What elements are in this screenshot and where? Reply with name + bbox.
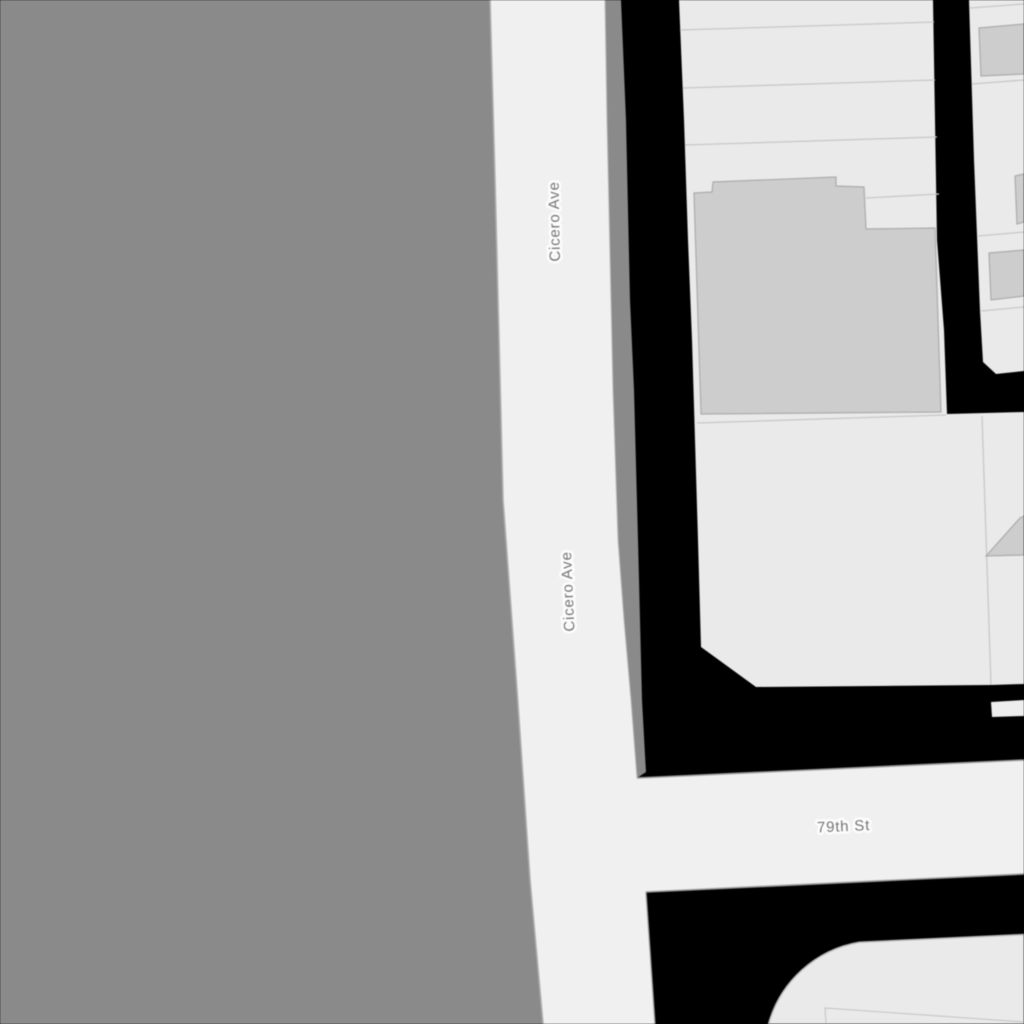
svg-text:Cicero Ave: Cicero Ave <box>546 181 564 262</box>
svg-text:Cicero Ave: Cicero Ave <box>558 551 578 632</box>
svg-text:79th St: 79th St <box>817 817 871 836</box>
